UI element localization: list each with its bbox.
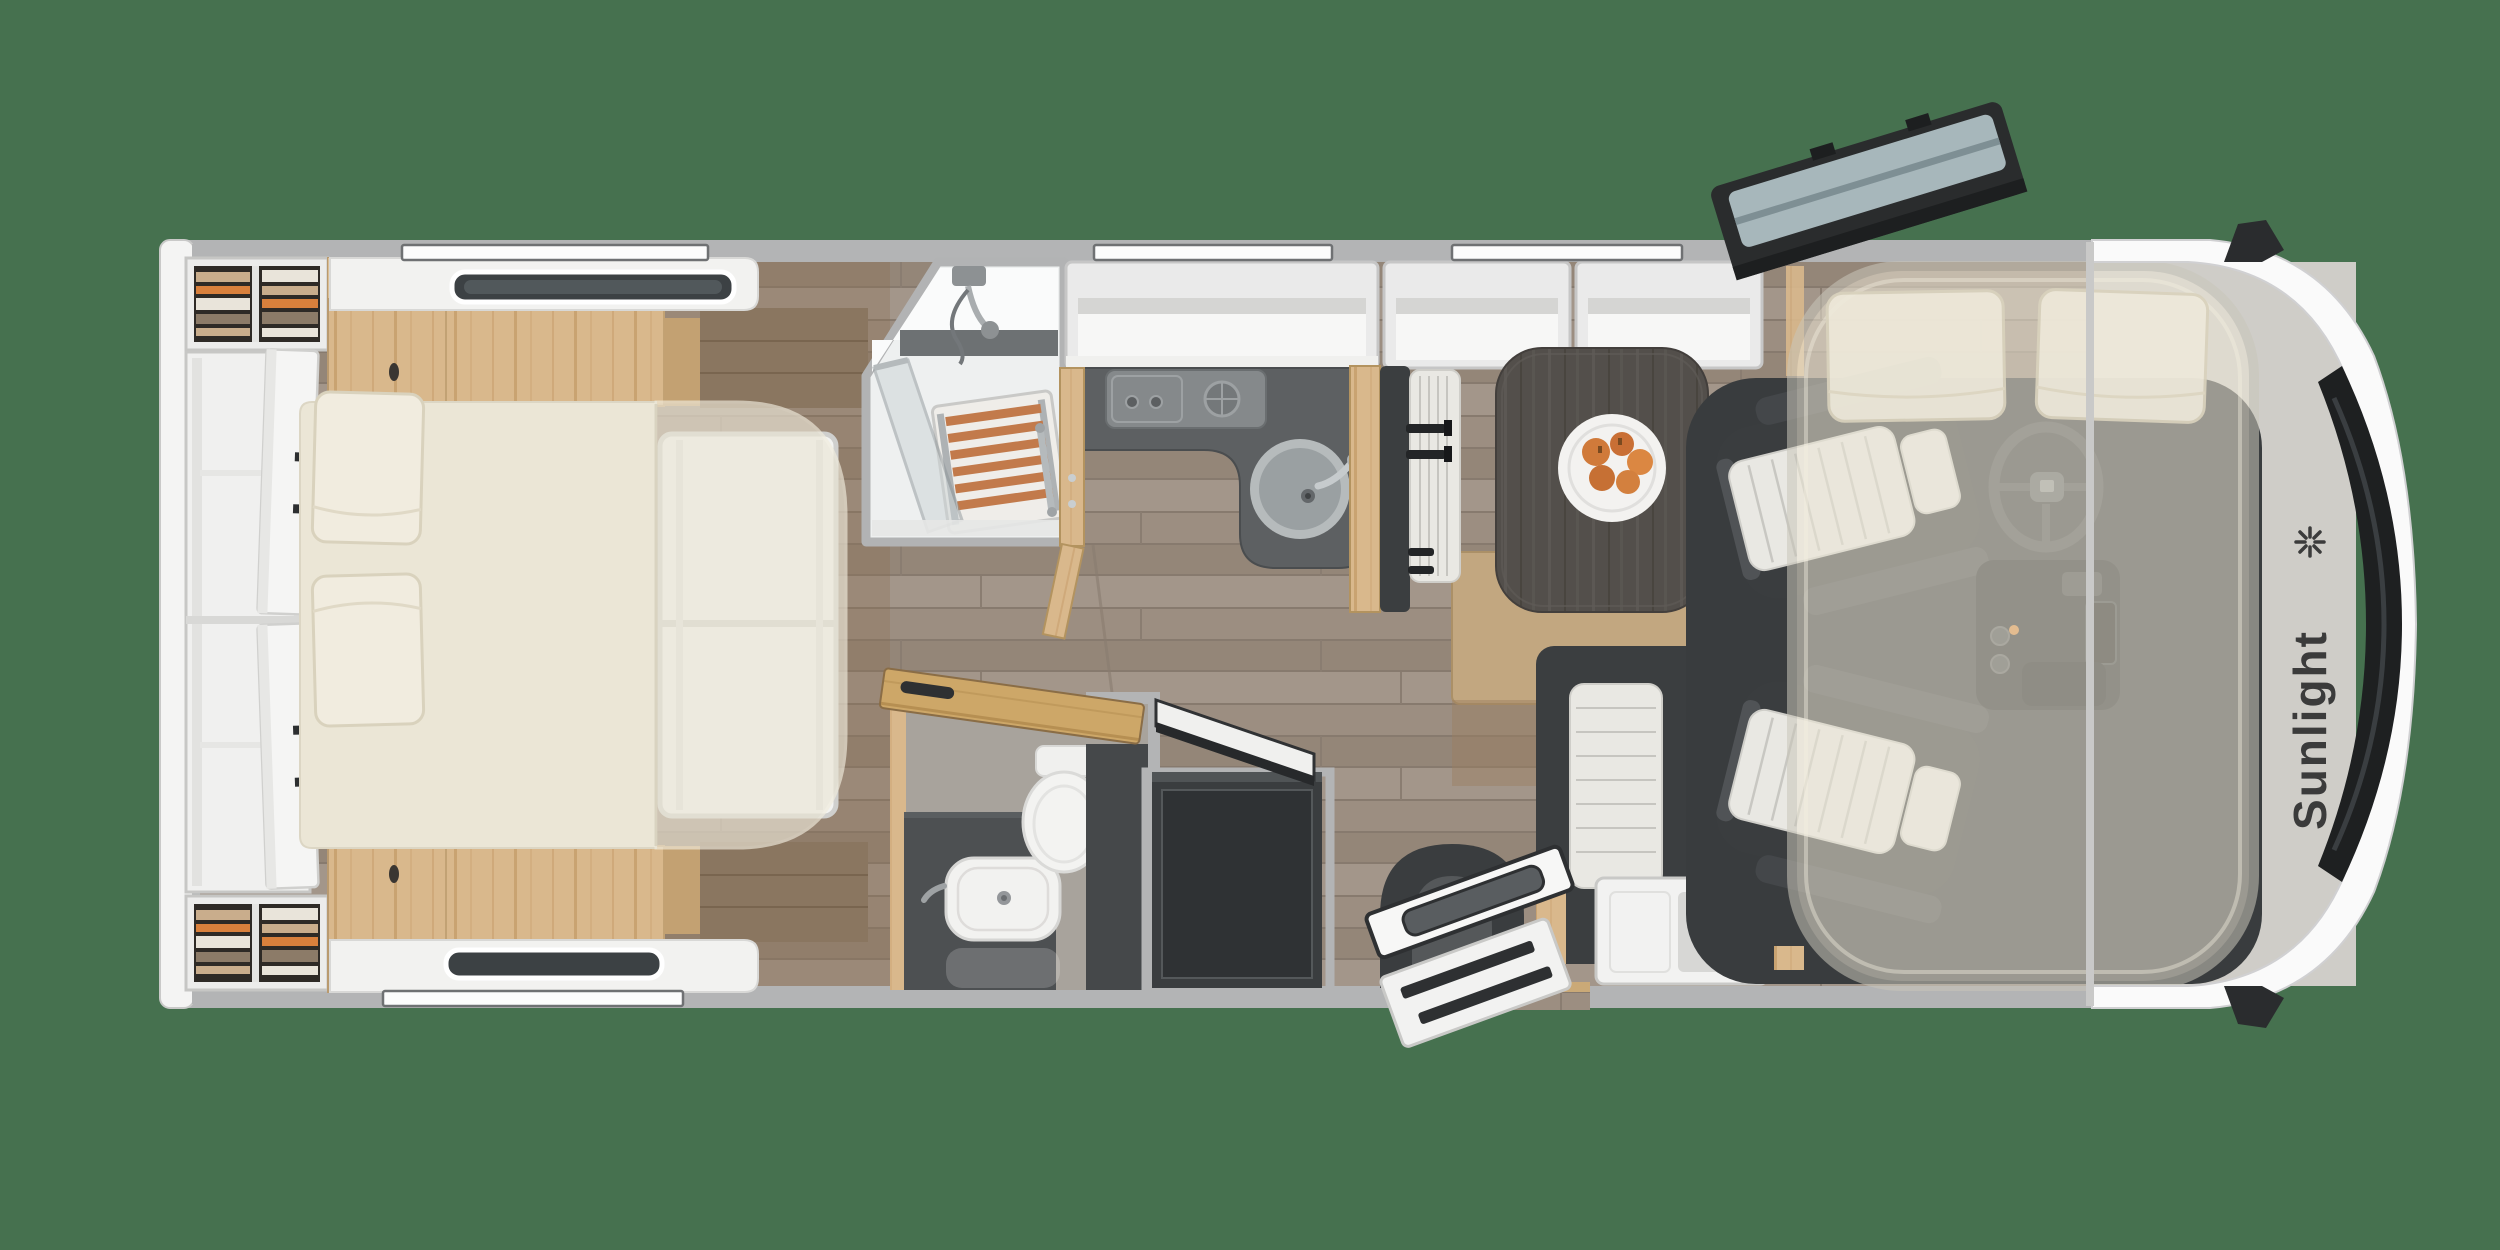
bed-pillow [312, 574, 424, 727]
floor-plan-stage: Sunlight [0, 0, 2500, 1250]
bathroom-partition [1086, 744, 1150, 990]
dinette-table [1496, 348, 1708, 612]
window-strip-top-3 [1452, 245, 1682, 260]
bathroom [879, 668, 1160, 990]
window-strip-bottom [383, 991, 683, 1006]
fruit-plate [1558, 414, 1666, 522]
stove [1106, 370, 1266, 428]
walnut-floor-strip [700, 308, 868, 408]
overcab-pillow-right [2036, 289, 2208, 423]
brand-name: Sunlight [2284, 630, 2336, 830]
headboard-panel [446, 306, 664, 406]
overcab-bed [1786, 266, 2254, 986]
wardrobe-bottom [186, 896, 328, 990]
bed-pillow [312, 392, 424, 545]
walnut-floor-strip [700, 842, 868, 942]
kitchen-overhead-cabinet [1066, 262, 1378, 368]
ceiling-shelf-top [330, 258, 758, 310]
headboard-panel [664, 846, 702, 934]
rear-bedroom [186, 258, 868, 992]
window-strip-top-2 [1094, 245, 1332, 260]
motorhome-floor-plan: Sunlight [0, 0, 2500, 1250]
drawer-handle-icon [389, 865, 399, 883]
dinette-bench-forward [1350, 366, 1460, 612]
burner-icon [1126, 396, 1138, 408]
overcab-pillow-left [1827, 290, 2005, 421]
shower-shelf [900, 330, 1058, 356]
burner-icon [1150, 396, 1162, 408]
bed-skylight [446, 950, 662, 978]
drawer-handle-icon [389, 363, 399, 381]
window-strip-top-1 [402, 245, 708, 260]
floor-sill [1774, 946, 1804, 970]
ceiling-shelf-bottom [330, 940, 758, 992]
headboard-panel [446, 846, 664, 942]
door-jamb [890, 700, 906, 990]
headboard-panel [664, 318, 702, 406]
wardrobe-top [186, 258, 328, 350]
